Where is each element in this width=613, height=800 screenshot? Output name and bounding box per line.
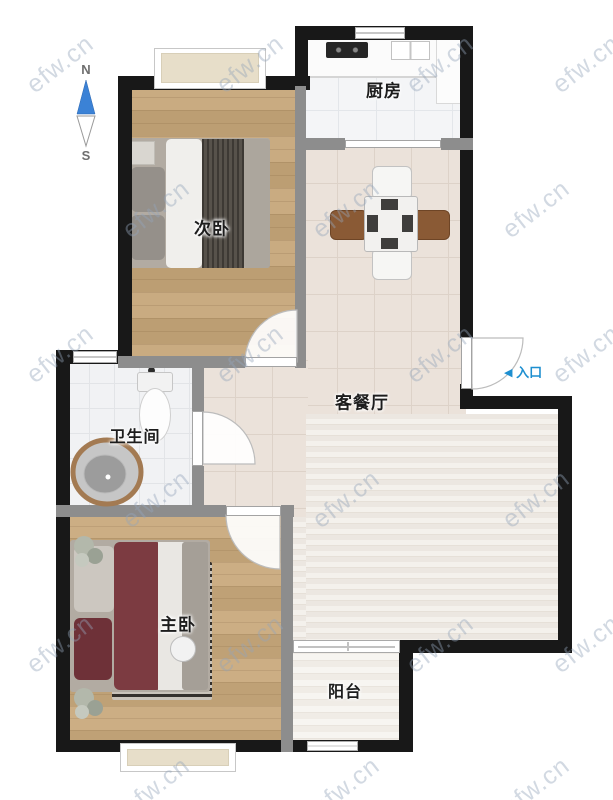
label-balcony: 阳台 [328,678,362,702]
master-bedroom-door-leaf [226,506,281,516]
compass-north-label: N [81,62,90,77]
label-living-dining: 客餐厅 [335,389,389,414]
label-kitchen: 厨房 [366,77,402,102]
bathroom-door-leaf [192,411,203,466]
master-bedroom-door-swing-arc [226,515,280,569]
plant [74,688,103,719]
compass-needle-north [77,80,95,114]
label-secondary-bedroom: 次卧 [194,215,230,240]
floor-plan: 次卧 厨房 客餐厅 卫生间 主卧 阳台 ◀ 入口 N S efw.cnefw.c… [0,0,613,800]
compass-south-label: S [82,148,91,162]
bathtub-drain [106,475,111,480]
compass: N S [66,58,106,162]
label-bathroom: 卫生间 [109,423,160,447]
entry-door-leaf [461,337,472,389]
bathroom-door-swing-arc [203,412,255,464]
entrance-label: ◀ 入口 [504,362,542,381]
entrance-text: 入口 [516,365,542,380]
label-master-bedroom: 主卧 [160,611,196,636]
secondary-bedroom-door-leaf [245,357,297,367]
plant [74,536,103,567]
entrance-arrow-icon: ◀ [504,367,512,379]
secondary-bedroom-door-swing-arc [245,310,297,362]
bathtub-basin [84,455,126,493]
compass-needle-south [77,116,95,146]
